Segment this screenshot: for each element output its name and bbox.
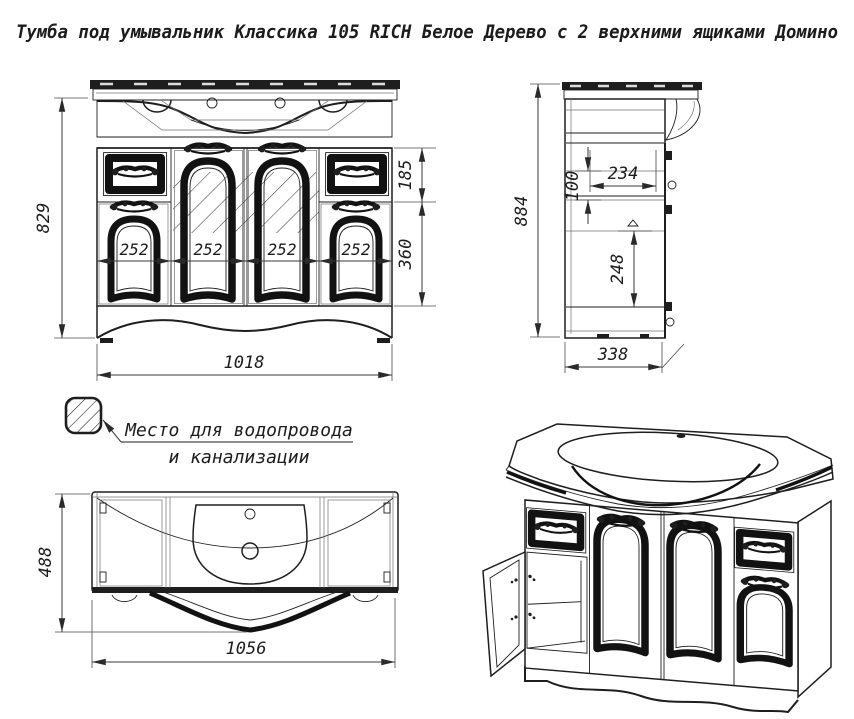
plan-dimensions: 488 1056 <box>36 494 395 668</box>
persp-side-panel <box>798 501 831 697</box>
drawing-title: Тумба под умывальник Классика 105 RICH Б… <box>16 21 838 43</box>
side-view: 884 338 234 100 248 <box>512 82 702 373</box>
persp-drawer-right <box>735 527 794 572</box>
front-door-left <box>111 219 157 299</box>
front-drawer-right <box>326 153 389 196</box>
plumbing-symbol <box>66 398 101 433</box>
front-view: 829 1018 185 360 252 252 252 252 <box>34 80 436 381</box>
side-interior-lines <box>566 110 664 331</box>
dim-side-depth: 338 <box>597 345 629 365</box>
dim-side-height: 884 <box>512 196 532 227</box>
plan-interior <box>100 497 390 588</box>
perspective-view <box>483 424 833 712</box>
dim-drawer-height: 185 <box>396 160 416 191</box>
legend: Место для водопровода и канализации <box>66 398 353 468</box>
legend-note-line1: Место для водопровода <box>124 420 353 441</box>
plumbing-area-hatch <box>173 172 319 233</box>
persp-open-door <box>483 552 525 676</box>
front-door-left-handle <box>111 202 158 212</box>
front-door-right <box>333 219 379 299</box>
dim-panel-3: 252 <box>268 240 297 259</box>
front-apron <box>97 306 392 343</box>
dim-panel-1: 252 <box>120 240 149 259</box>
front-sink-basin <box>97 98 392 137</box>
dim-panel-2: 252 <box>194 240 223 259</box>
plan-view: 488 1056 <box>36 492 398 668</box>
side-sink-profile <box>665 99 700 140</box>
front-countertop <box>90 80 400 100</box>
dim-side-inner-height: 248 <box>608 254 628 285</box>
legend-note-line2: и канализации <box>169 447 310 468</box>
front-drawer-left <box>104 153 167 196</box>
plan-front-curve <box>112 592 378 630</box>
side-dimensions: 884 338 234 100 248 <box>512 84 684 373</box>
persp-face <box>525 500 798 691</box>
dim-door-height: 360 <box>396 239 416 271</box>
technical-drawing-page: Тумба под умывальник Классика 105 RICH Б… <box>0 0 854 719</box>
plan-sink <box>97 498 393 584</box>
drawing-canvas: Тумба под умывальник Классика 105 RICH Б… <box>0 0 854 719</box>
front-door-right-handle <box>333 202 380 212</box>
dim-side-inner-width: 234 <box>608 164 639 184</box>
persp-drawer-left <box>527 508 586 553</box>
front-face <box>97 144 392 306</box>
dim-front-height: 829 <box>34 203 54 234</box>
dim-side-gap: 100 <box>563 171 583 202</box>
persp-countertop <box>506 424 833 515</box>
dim-plan-width: 1056 <box>226 639 267 659</box>
dim-plan-depth: 488 <box>36 547 56 578</box>
dim-panel-4: 252 <box>342 240 371 259</box>
dim-front-width: 1018 <box>224 353 265 373</box>
